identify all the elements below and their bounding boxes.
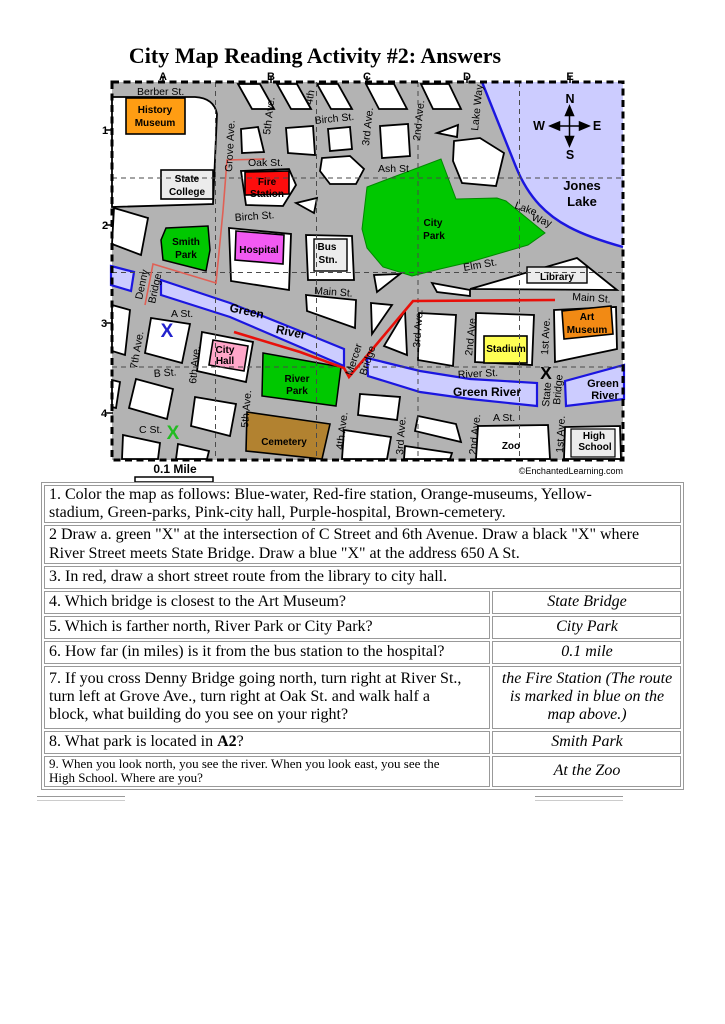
svg-text:4: 4 bbox=[101, 408, 108, 420]
svg-text:Museum: Museum bbox=[135, 118, 176, 129]
svg-text:Park: Park bbox=[286, 386, 308, 397]
svg-text:Green: Green bbox=[587, 378, 619, 390]
svg-text:Ash St: Ash St bbox=[378, 163, 409, 175]
svg-text:Smith: Smith bbox=[172, 237, 200, 248]
svg-text:Art: Art bbox=[580, 312, 595, 323]
svg-text:Fire: Fire bbox=[258, 177, 277, 188]
svg-text:Hospital: Hospital bbox=[239, 245, 279, 256]
svg-text:E: E bbox=[593, 119, 601, 133]
svg-text:A St.: A St. bbox=[493, 412, 515, 424]
svg-text:1st Ave.: 1st Ave. bbox=[539, 317, 553, 355]
svg-text:D: D bbox=[463, 71, 471, 83]
svg-text:N: N bbox=[565, 92, 574, 106]
svg-text:X: X bbox=[167, 423, 180, 444]
svg-text:A: A bbox=[159, 71, 167, 83]
svg-text:3: 3 bbox=[101, 318, 107, 330]
svg-text:0.1 Mile: 0.1 Mile bbox=[153, 462, 197, 476]
svg-text:Stn.: Stn. bbox=[319, 255, 338, 266]
svg-text:E: E bbox=[566, 71, 573, 83]
svg-text:College: College bbox=[169, 187, 206, 198]
svg-text:4th: 4th bbox=[303, 89, 317, 106]
svg-text:A St.: A St. bbox=[171, 308, 193, 320]
svg-text:High: High bbox=[583, 431, 605, 442]
svg-text:Cemetery: Cemetery bbox=[261, 437, 307, 448]
svg-text:B: B bbox=[267, 71, 275, 83]
svg-text:Jones: Jones bbox=[563, 178, 601, 193]
svg-text:Museum: Museum bbox=[567, 325, 608, 336]
svg-text:C: C bbox=[363, 71, 371, 83]
svg-text:Lake: Lake bbox=[567, 194, 597, 209]
svg-text:City: City bbox=[424, 218, 443, 229]
svg-text:Hall: Hall bbox=[216, 356, 235, 367]
svg-text:History: History bbox=[138, 105, 173, 116]
svg-text:Station: Station bbox=[250, 189, 284, 200]
svg-text:C St.: C St. bbox=[139, 424, 162, 436]
svg-text:River: River bbox=[284, 374, 309, 385]
svg-text:Stadium: Stadium bbox=[486, 344, 526, 355]
svg-text:2: 2 bbox=[102, 220, 108, 232]
svg-text:W: W bbox=[533, 119, 545, 133]
svg-text:Park: Park bbox=[175, 250, 197, 261]
svg-text:Bus: Bus bbox=[318, 242, 337, 253]
svg-text:Park: Park bbox=[423, 231, 445, 242]
svg-text:State: State bbox=[175, 174, 200, 185]
svg-text:B St.: B St. bbox=[153, 366, 177, 380]
svg-text:1st Ave.: 1st Ave. bbox=[554, 415, 568, 453]
svg-text:X: X bbox=[540, 363, 552, 383]
svg-text:X: X bbox=[161, 321, 174, 342]
svg-text:Zoo: Zoo bbox=[502, 441, 520, 452]
svg-text:S: S bbox=[566, 148, 574, 162]
svg-text:Green River: Green River bbox=[453, 385, 521, 399]
svg-text:River St.: River St. bbox=[458, 367, 499, 381]
svg-text:1: 1 bbox=[102, 125, 108, 137]
svg-text:Berber St.: Berber St. bbox=[137, 86, 184, 98]
svg-text:©EnchantedLearning.com: ©EnchantedLearning.com bbox=[519, 466, 623, 476]
svg-text:School: School bbox=[578, 442, 612, 453]
svg-text:City: City bbox=[216, 345, 235, 356]
svg-text:River: River bbox=[591, 390, 619, 402]
svg-text:Oak St.: Oak St. bbox=[248, 157, 283, 169]
svg-text:Library: Library bbox=[540, 272, 574, 283]
